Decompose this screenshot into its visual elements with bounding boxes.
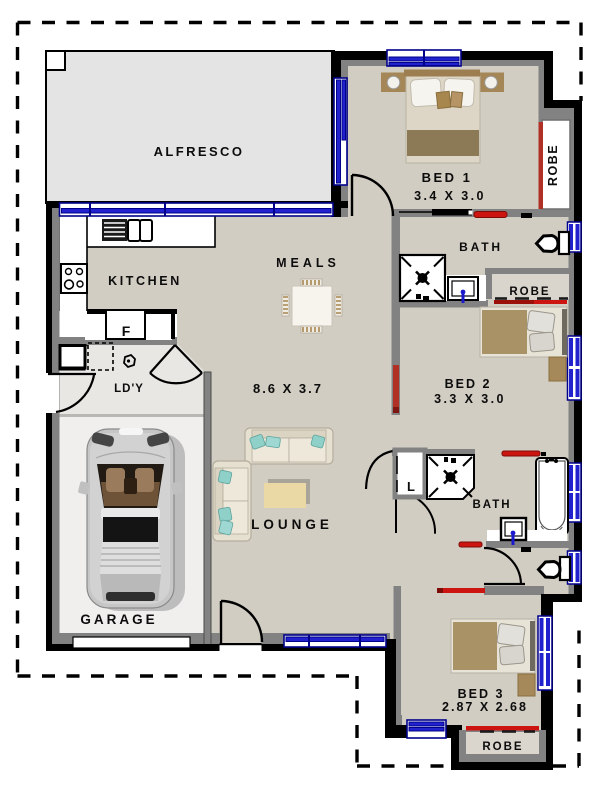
svg-text:LOUNGE: LOUNGE <box>251 517 333 532</box>
svg-text:BED 3: BED 3 <box>458 687 505 701</box>
svg-text:L: L <box>407 479 415 494</box>
svg-text:3.3 X 3.0: 3.3 X 3.0 <box>434 392 506 406</box>
svg-text:ROBE: ROBE <box>509 286 550 298</box>
svg-text:3.4 X 3.0: 3.4 X 3.0 <box>414 189 486 203</box>
svg-text:MEALS: MEALS <box>276 256 340 270</box>
svg-text:8.6 X 3.7: 8.6 X 3.7 <box>253 381 323 396</box>
svg-text:BED 2: BED 2 <box>445 377 492 391</box>
svg-text:BATH: BATH <box>459 240 503 254</box>
svg-text:2.87 X 2.68: 2.87 X 2.68 <box>442 700 528 714</box>
svg-text:ROBE: ROBE <box>546 144 560 186</box>
svg-text:LD'Y: LD'Y <box>114 383 144 395</box>
svg-text:BATH: BATH <box>472 499 511 511</box>
svg-text:ROBE: ROBE <box>482 741 523 753</box>
svg-text:ALFRESCO: ALFRESCO <box>154 144 245 159</box>
svg-text:GARAGE: GARAGE <box>80 612 157 627</box>
svg-text:F: F <box>122 323 131 339</box>
svg-text:KITCHEN: KITCHEN <box>108 274 182 288</box>
svg-text:BED 1: BED 1 <box>422 170 473 185</box>
